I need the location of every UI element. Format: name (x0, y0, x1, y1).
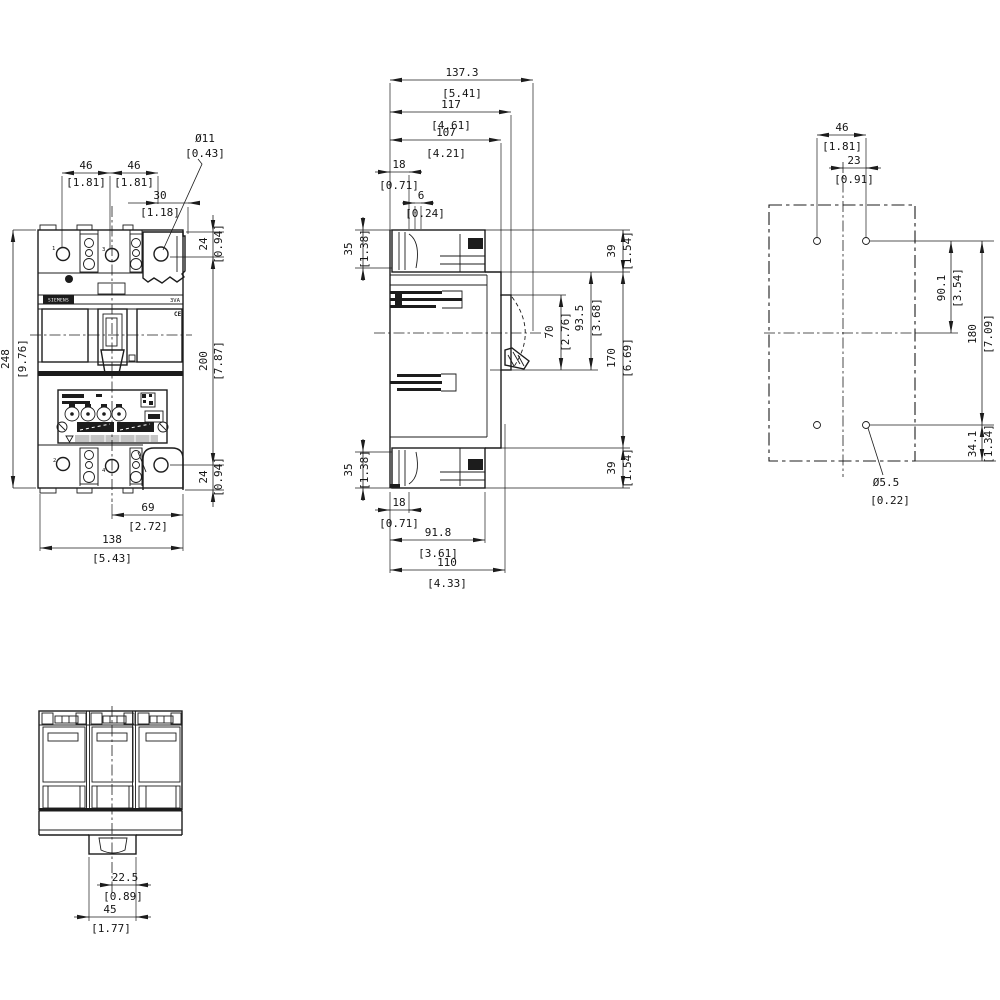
dim-din-top-mm: 18 (392, 158, 405, 171)
mounting-holes (814, 238, 870, 429)
dim-hole-top-mm: 24 (197, 237, 210, 251)
dim-hole-span-mm: 200 (197, 351, 210, 371)
adjustment-dials (65, 404, 126, 421)
side-view: 137.3 [5.41] 117 [4.61] 107 [4.21] 18 [0… (342, 66, 634, 590)
bottom-base-plate (39, 811, 182, 854)
dim-rail-half-inch: [0.89] (103, 890, 143, 903)
front-view: SIEMENS 3VA CE (0, 132, 225, 565)
dim-rail-step-mm: 6 (418, 189, 425, 202)
dim-body-depth-mm: 91.8 (425, 526, 452, 539)
brand-text: SIEMENS (48, 298, 69, 304)
pole1-terminal-hole (57, 248, 70, 261)
dim-hole-pitch-v-inch: [7.09] (982, 314, 995, 354)
dim-half-pitch-inch: [0.91] (834, 173, 874, 186)
front-outline (38, 225, 183, 493)
pole-label-4: 4 (102, 468, 106, 474)
drilling-plan-view: 46 [1.81] 23 [0.91] 90.1 [3.54] 180 [7.0… (764, 121, 996, 507)
dim-height-inch: [9.76] (16, 339, 29, 379)
dim-base-depth-mm: 110 (437, 556, 457, 569)
dim-din-top-inch: [0.71] (379, 179, 419, 192)
dim-handle-window-mm: 70 (543, 325, 556, 338)
dimension-drawing-canvas: SIEMENS 3VA CE (0, 0, 1000, 1000)
dim-cover-depth-mm: 107 (436, 126, 456, 139)
dim-section-mid-mm: 170 (605, 348, 618, 368)
dim-hole-bottom-mm: 24 (197, 470, 210, 484)
pole-label-3: 3 (102, 247, 105, 253)
lug-hole-top (154, 247, 168, 261)
dim-drill-dia-mm: Ø5.5 (873, 476, 900, 489)
dim-term-bottom-mm: 35 (342, 463, 355, 476)
dim-pole-pitch1-mm: 46 (79, 159, 92, 172)
test-button (65, 275, 73, 283)
dim-lug-offset-mm: 30 (153, 189, 166, 202)
dim-drill-dia-inch: [0.22] (870, 494, 910, 507)
dim-handle-window-inch: [2.76] (559, 312, 572, 352)
dim-base-depth-inch: [4.33] (427, 577, 467, 590)
dim-rail-step-inch: [0.24] (405, 207, 445, 220)
dim-width-mm: 138 (102, 533, 122, 546)
front-top-terminals (57, 230, 186, 294)
dim-hole-pitch-v-mm: 180 (966, 324, 979, 344)
dim-section-bottom-mm: 39 (605, 461, 618, 474)
dim-term-bottom-inch: [1.38] (358, 450, 371, 490)
terminal-label-strips (75, 422, 158, 442)
front-dimensions: 46 [1.81] 46 [1.81] 30 [1.18] Ø11 [0.43]… (0, 132, 225, 565)
dim-hole-bottom-inch: [0.94] (212, 457, 225, 497)
dim-upper-half-inch: [3.54] (951, 268, 964, 308)
label-window (98, 283, 125, 294)
dim-hole-top-inch: [0.94] (212, 224, 225, 264)
dim-hole-pitch-h-inch: [1.81] (822, 140, 862, 153)
bottom-view: 22.5 [0.89] 45 [1.77] (39, 706, 182, 935)
accessory-connector (145, 411, 163, 422)
dim-depth-total-mm: 137.3 (445, 66, 478, 79)
terminal-screws-bottom (84, 451, 142, 483)
toggle-handle (101, 350, 124, 373)
dim-cover-depth-inch: [4.21] (426, 147, 466, 160)
dim-pole-pitch2-inch: [1.81] (114, 176, 154, 189)
bottom-dimensions: 22.5 [0.89] 45 [1.77] (74, 857, 151, 935)
side-dimensions: 137.3 [5.41] 117 [4.61] 107 [4.21] 18 [0… (342, 66, 634, 590)
drill-dimensions: 46 [1.81] 23 [0.91] 90.1 [3.54] 180 [7.0… (817, 121, 996, 507)
extended-lug-top (143, 232, 185, 283)
dim-section-mid-inch: [6.69] (621, 338, 634, 378)
dim-upper-half-mm: 90.1 (935, 275, 948, 302)
dim-hole-span-inch: [7.87] (212, 341, 225, 381)
pole-label-1: 1 (52, 246, 55, 252)
dim-term-top-inch: [1.38] (358, 229, 371, 269)
dim-lug-hole-dia-mm: Ø11 (195, 132, 215, 145)
dim-front-step-inch: [3.68] (590, 298, 603, 338)
dim-lug-hole-dia-inch: [0.43] (185, 147, 225, 160)
dim-bottom-edge-mm: 34.1 (966, 431, 979, 458)
dim-section-top-mm: 39 (605, 244, 618, 257)
dim-handle-depth-mm: 117 (441, 98, 461, 111)
dim-front-step-mm: 93.5 (573, 305, 586, 332)
dim-pole-pitch1-inch: [1.81] (66, 176, 106, 189)
side-escutcheon (501, 295, 511, 370)
side-outline (390, 230, 511, 488)
dim-half-pitch-mm: 23 (847, 154, 860, 167)
extended-lug-bottom (143, 448, 183, 490)
dim-rail-half-mm: 22.5 (112, 871, 139, 884)
dim-din-bottom-mm: 18 (392, 496, 405, 509)
dim-width-inch: [5.43] (92, 552, 132, 565)
front-rating-plate (57, 390, 168, 443)
front-bottom-terminals (57, 448, 184, 490)
dim-height-mm: 248 (0, 349, 12, 369)
dim-term-top-mm: 35 (342, 242, 355, 255)
pole2-terminal-hole (57, 458, 70, 471)
dim-half-width-inch: [2.72] (128, 520, 168, 533)
dim-section-bottom-inch: [1.54] (621, 448, 634, 488)
dim-bottom-edge-inch: [1.34] (982, 424, 995, 464)
dim-section-top-inch: [1.54] (621, 231, 634, 271)
ce-mark: CE (174, 311, 182, 318)
lug-hole-bottom (154, 458, 168, 472)
side-busbar-straps (390, 291, 462, 391)
bottom-pole-modules (39, 713, 182, 812)
qr-code (141, 393, 155, 407)
dim-half-width-mm: 69 (141, 501, 154, 514)
dim-lug-offset-inch: [1.18] (140, 206, 180, 219)
series-text: 3VA (170, 298, 181, 304)
warning-triangle-icon (66, 436, 73, 442)
terminal-screws-top (84, 239, 142, 270)
dim-rail-width-mm: 45 (103, 903, 116, 916)
bottom-outline (39, 711, 182, 810)
dim-din-bottom-inch: [0.71] (379, 517, 419, 530)
dim-hole-pitch-h-mm: 46 (835, 121, 848, 134)
dimension-drawing-page: SIEMENS 3VA CE (0, 0, 1000, 1000)
dim-rail-width-inch: [1.77] (91, 922, 131, 935)
pole-label-2: 2 (53, 458, 56, 464)
dim-pole-pitch2-mm: 46 (127, 159, 140, 172)
